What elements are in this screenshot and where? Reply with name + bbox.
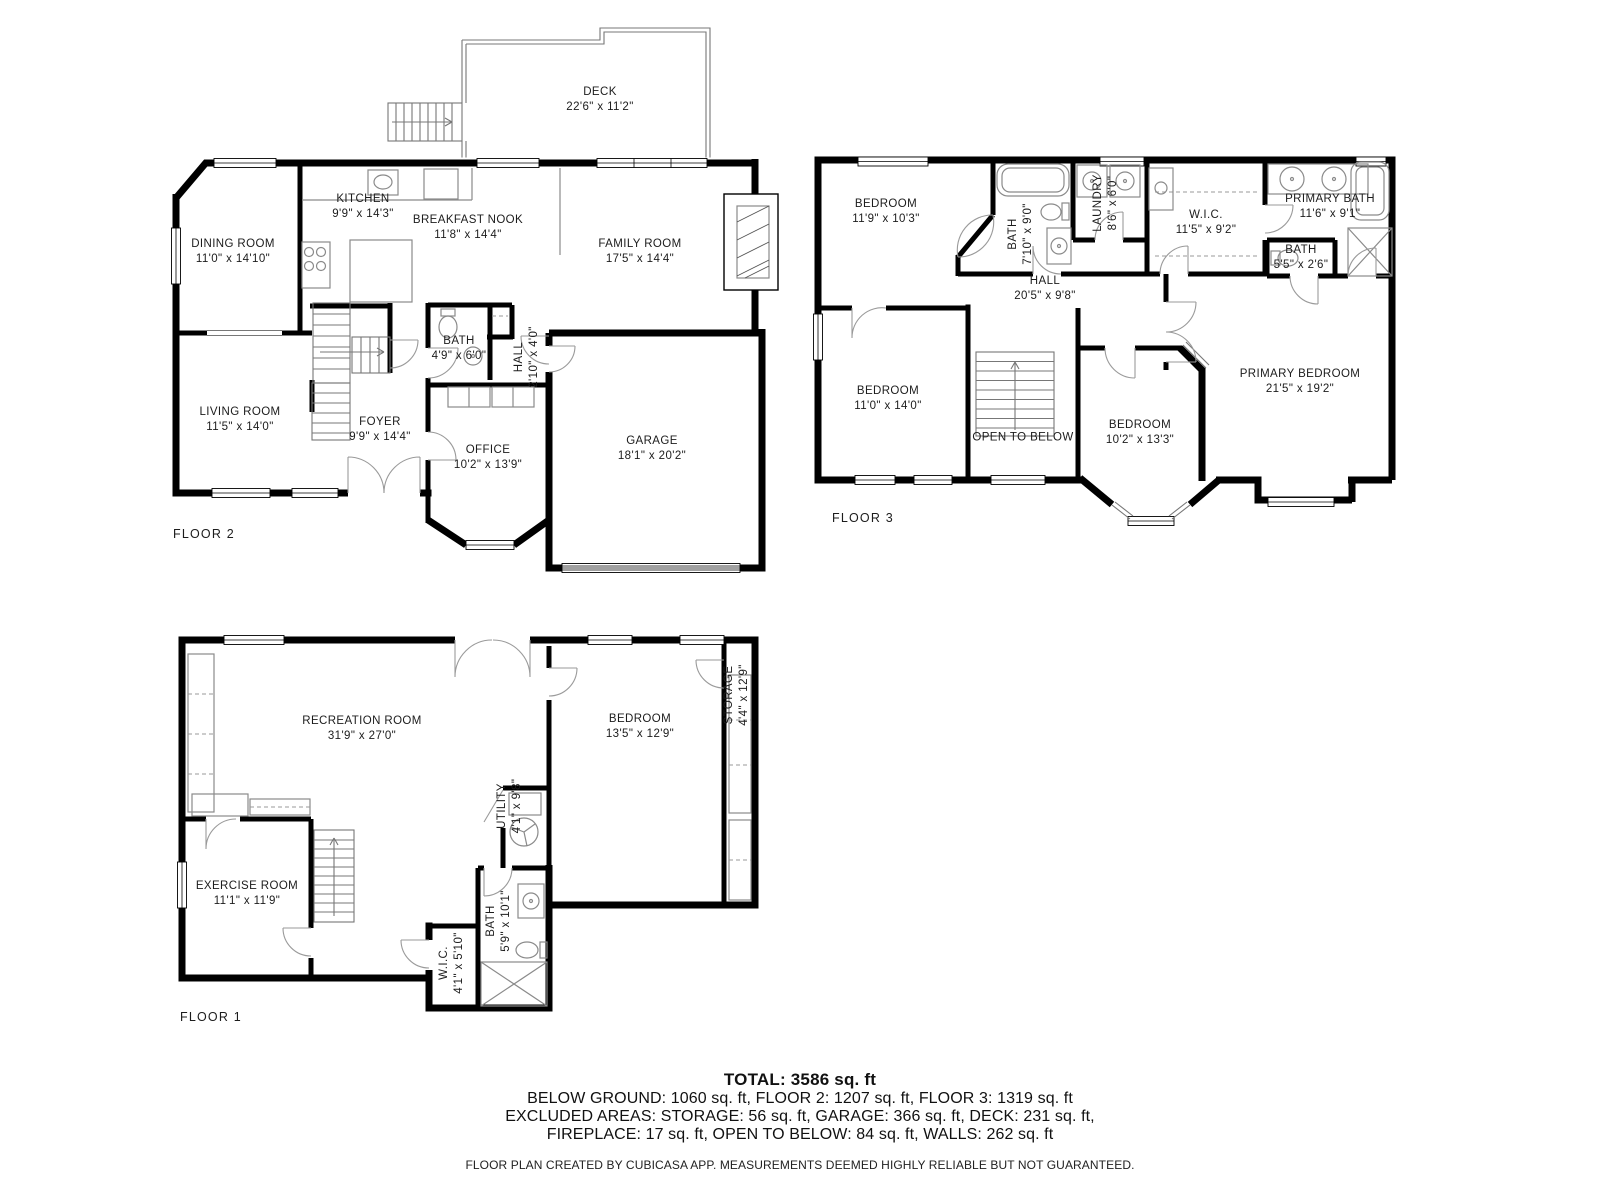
room-label-living-room: LIVING ROOM 11'5" x 14'0" — [199, 405, 280, 435]
room-label-bedroom-f1: BEDROOM 13'5" x 12'9" — [606, 712, 674, 742]
floor1-windows — [178, 636, 725, 909]
room-label-laundry: LAUNDRY 8'6" x 6'0" — [1091, 174, 1121, 232]
room-label-primary-bath: PRIMARY BATH 11'6" x 9'1" — [1285, 192, 1375, 222]
room-label-primary-bedroom: PRIMARY BEDROOM 21'5" x 19'2" — [1240, 367, 1361, 397]
room-label-breakfast-nook: BREAKFAST NOOK 11'8" x 14'4" — [413, 213, 523, 243]
summary-excluded-line: EXCLUDED AREAS: STORAGE: 56 sq. ft, GARA… — [0, 1108, 1600, 1126]
room-label-exercise-room: EXERCISE ROOM 11'1" x 11'9" — [196, 879, 298, 909]
room-label-family-room: FAMILY ROOM 17'5" x 14'4" — [598, 237, 681, 267]
room-label-office: OFFICE 10'2" x 13'9" — [454, 443, 522, 473]
room-label-hall-f2: HALL 2'10" x 4'0" — [512, 326, 542, 387]
room-label-storage: STORAGE 4'4" x 12'9" — [722, 664, 752, 725]
floor2-deck-outline — [388, 28, 710, 158]
footer-disclaimer: FLOOR PLAN CREATED BY CUBICASA APP. MEAS… — [0, 1158, 1600, 1172]
room-label-bath2-f3: BATH 5'5" x 2'6" — [1274, 243, 1329, 273]
room-label-utility: UTILITY 4'1" x 9'8" — [495, 779, 525, 834]
summary-floors-line: BELOW GROUND: 1060 sq. ft, FLOOR 2: 1207… — [0, 1090, 1600, 1108]
room-label-hall-f3: HALL 20'5" x 9'8" — [1014, 274, 1075, 304]
room-label-recreation-room: RECREATION ROOM 31'9" x 27'0" — [302, 714, 422, 744]
room-label-bedroom2-f3: BEDROOM 11'0" x 14'0" — [854, 384, 921, 414]
floor-3-label: FLOOR 3 — [832, 511, 894, 525]
summary-total: TOTAL: 3586 sq. ft — [0, 1070, 1600, 1090]
room-label-bedroom3-f3: BEDROOM 10'2" x 13'3" — [1106, 418, 1174, 448]
floor3-stairs — [976, 352, 1054, 436]
room-label-kitchen: KITCHEN 9'9" x 14'3" — [332, 192, 393, 222]
floor1-walls — [179, 637, 759, 1012]
room-label-bath-f2: BATH 4'9" x 6'0" — [432, 334, 487, 364]
floor-1-label: FLOOR 1 — [180, 1010, 242, 1024]
room-label-deck: DECK 22'6" x 11'2" — [566, 85, 633, 115]
room-label-open-to-below: OPEN TO BELOW — [972, 430, 1073, 445]
room-label-bedroom1-f3: BEDROOM 11'9" x 10'3" — [852, 197, 919, 227]
room-label-bath-f3: BATH 7'10" x 9'0" — [1006, 203, 1036, 264]
floor1-fixtures — [188, 654, 751, 1006]
summary-excluded-line2: FIREPLACE: 17 sq. ft, OPEN TO BELOW: 84 … — [0, 1126, 1600, 1144]
room-label-foyer: FOYER 9'9" x 14'4" — [349, 415, 410, 445]
floor1-stairs — [314, 830, 354, 922]
fireplace — [724, 194, 778, 290]
floor-plan-page: DECK 22'6" x 11'2" KITCHEN 9'9" x 14'3" … — [0, 0, 1600, 1200]
room-label-wic-f1: W.I.C. 4'1" x 5'10" — [437, 932, 467, 993]
floor-2-label: FLOOR 2 — [173, 527, 235, 541]
room-label-wic-f3: W.I.C. 11'5" x 9'2" — [1176, 208, 1237, 238]
room-label-dining-room: DINING ROOM 11'0" x 14'10" — [191, 237, 275, 267]
room-label-bath-f1: BATH 5'9" x 10'1" — [484, 890, 514, 951]
room-label-garage: GARAGE 18'1" x 20'2" — [618, 434, 686, 464]
floor1-doors — [206, 640, 724, 968]
